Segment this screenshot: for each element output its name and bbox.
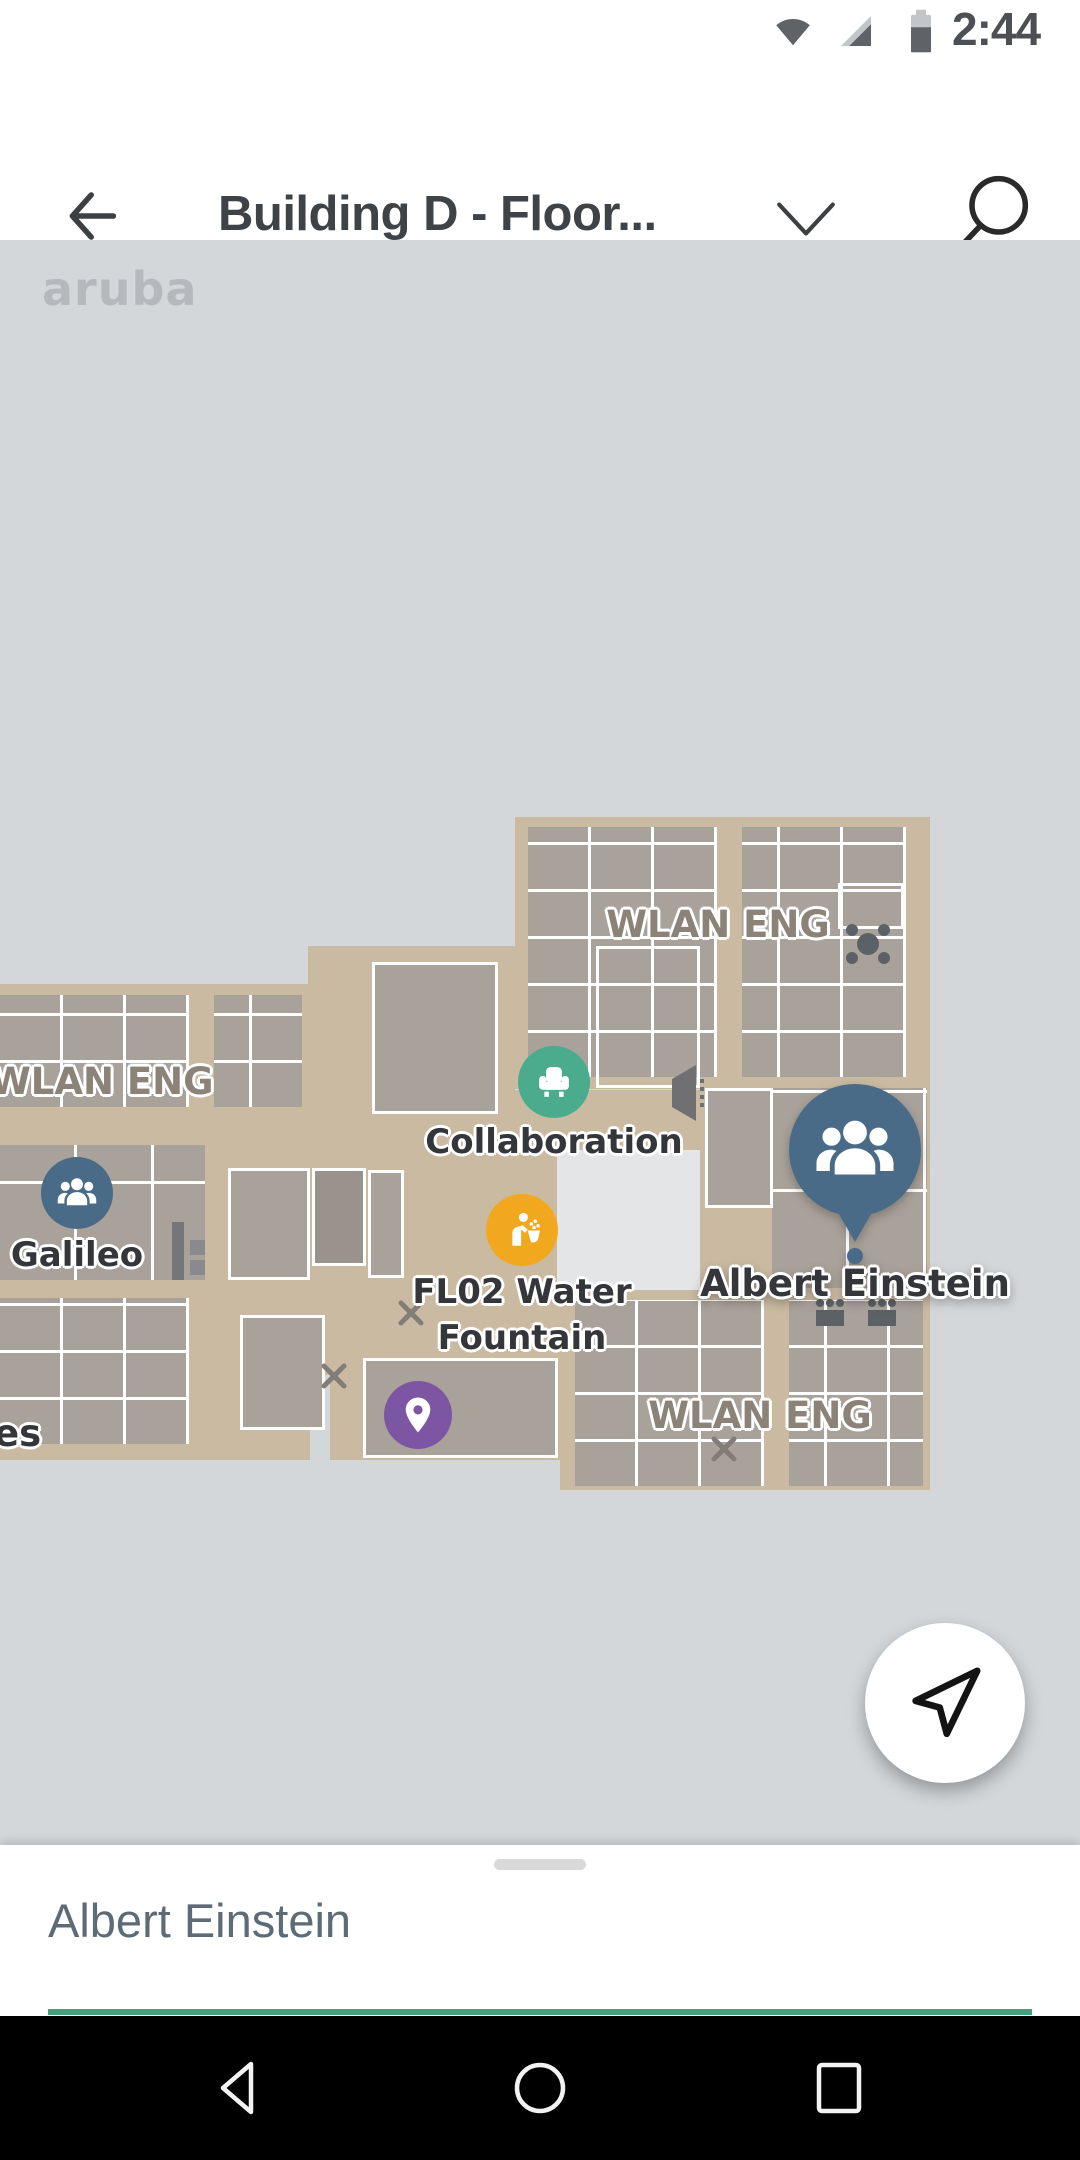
- recenter-fab[interactable]: [865, 1623, 1025, 1783]
- bottom-sheet[interactable]: Albert Einstein: [0, 1845, 1080, 2016]
- chevron-down-icon[interactable]: [773, 198, 839, 240]
- poi-label: Galileo: [11, 1235, 143, 1275]
- room: [312, 1168, 366, 1266]
- people-icon: [56, 1172, 98, 1214]
- cabinet: [190, 1260, 205, 1275]
- status-time: 2:44: [952, 2, 1040, 56]
- presentation-icon: [660, 1063, 710, 1123]
- drag-handle[interactable]: [494, 1859, 586, 1870]
- room-light: [557, 1150, 700, 1290]
- poi-label: Albert Einstein: [700, 1262, 1010, 1305]
- drinking-fountain-icon: [501, 1209, 543, 1251]
- back-arrow-icon[interactable]: [58, 185, 120, 247]
- recents-square-icon[interactable]: [807, 2056, 871, 2120]
- room-label-partial: es: [0, 1412, 41, 1455]
- map-pin-icon: [396, 1393, 440, 1437]
- room: [240, 1315, 325, 1430]
- phone-screen: 2:44 Building D - Floor... aruba: [0, 0, 1080, 2160]
- page-title[interactable]: Building D - Floor...: [218, 186, 657, 242]
- x-mark-icon: [319, 1361, 349, 1391]
- navigate-arrow-icon: [903, 1661, 987, 1745]
- room-label-wlan-eng: WLAN ENG: [568, 903, 868, 946]
- poi-label: Fountain: [438, 1318, 607, 1358]
- status-bar: 2:44: [0, 0, 1080, 60]
- armchair-icon: [533, 1061, 575, 1103]
- x-mark-icon: [709, 1434, 739, 1464]
- home-circle-icon[interactable]: [508, 2056, 572, 2120]
- poi-label: FL02 Water: [412, 1272, 631, 1312]
- android-navigation-bar: [0, 2016, 1080, 2160]
- poi-label: Collaboration: [425, 1122, 682, 1162]
- cabinet: [190, 1240, 205, 1255]
- room: [368, 1170, 404, 1278]
- bottom-sheet-title: Albert Einstein: [48, 1893, 351, 1948]
- app-bar: Building D - Floor...: [0, 60, 1080, 240]
- room-label-wlan-eng: WLAN ENG: [0, 1060, 210, 1103]
- poi-dropped-pin[interactable]: [384, 1381, 452, 1449]
- cabinet: [172, 1222, 184, 1280]
- aruba-watermark: aruba: [42, 262, 197, 316]
- poi-galileo[interactable]: Galileo: [41, 1157, 113, 1229]
- accent-divider: [48, 2009, 1032, 2015]
- poi-collaboration[interactable]: Collaboration: [518, 1046, 590, 1118]
- conference-room: [372, 962, 498, 1114]
- room: [705, 1088, 773, 1208]
- wifi-icon: [772, 13, 814, 49]
- floorplan-map[interactable]: aruba: [0, 240, 1080, 1845]
- battery-icon: [906, 8, 936, 54]
- room-label-wlan-eng: WLAN ENG: [610, 1394, 910, 1437]
- poi-fl02-water-fountain[interactable]: FL02 Water Fountain: [486, 1194, 558, 1266]
- back-triangle-icon[interactable]: [209, 2056, 273, 2120]
- poi-albert-einstein-selected[interactable]: Albert Einstein: [780, 1084, 930, 1274]
- room: [228, 1168, 310, 1280]
- cell-signal-icon: [836, 13, 876, 49]
